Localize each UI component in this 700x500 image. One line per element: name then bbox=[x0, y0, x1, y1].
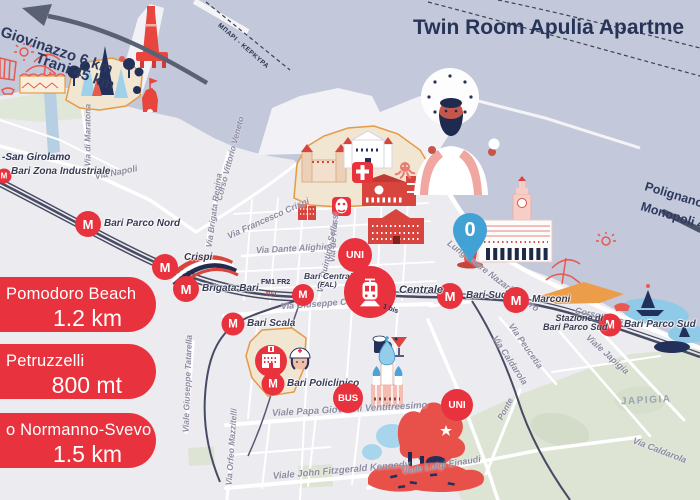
train-station-label: Centrale bbox=[399, 285, 443, 297]
distance-card-petruzzelli[interactable]: Petruzzelli 800 mt bbox=[0, 344, 156, 399]
metro-marker-marconi[interactable]: M bbox=[503, 287, 529, 313]
metro-label: Bari Parco Nord bbox=[104, 219, 180, 230]
metro-marker-bari-policlinico[interactable]: M bbox=[262, 373, 285, 396]
parco-sud-station-caption: Stazione di Bari Parco Sud bbox=[543, 314, 603, 333]
place-distance: 1.2 km bbox=[0, 305, 122, 332]
street-label: Via di Maratona bbox=[84, 104, 93, 167]
place-name: Petruzzelli bbox=[6, 352, 156, 371]
metro-label: Marconi bbox=[532, 295, 570, 306]
bari-tourist-map: Twin Room Apulia Apartme Giovinazzo 6 km… bbox=[0, 0, 700, 500]
metro-marker-brigata-bari[interactable]: M bbox=[173, 276, 199, 302]
rail-lines-label: FM1 FR2 bbox=[261, 279, 290, 286]
location-pin[interactable]: 0 bbox=[451, 212, 489, 264]
metro-label: Brigata Bari bbox=[202, 284, 259, 295]
metro-marker-bari-scala[interactable]: M bbox=[222, 313, 245, 336]
uni-badge[interactable]: UNI bbox=[441, 389, 473, 421]
metro-label: Bari Scala bbox=[247, 319, 295, 330]
bus-badge[interactable]: BUS bbox=[333, 383, 363, 413]
train-icon bbox=[355, 277, 385, 307]
map-title: Twin Room Apulia Apartme bbox=[413, 16, 684, 40]
area-san-girolamo: -San Girolamo bbox=[2, 153, 70, 164]
place-distance: 800 mt bbox=[0, 372, 122, 399]
place-name: Pomodoro Beach bbox=[6, 285, 156, 304]
metro-marker-bari-parco-nord[interactable]: M bbox=[75, 211, 101, 237]
distance-card-pomodoro-beach[interactable]: Pomodoro Beach 1.2 km bbox=[0, 277, 156, 332]
beach-cabins-illustration bbox=[20, 74, 65, 93]
metro-label: Bari Parco Sud bbox=[624, 320, 696, 331]
metro-label: Crispi bbox=[184, 253, 212, 264]
place-name: o Normanno-Svevo bbox=[6, 421, 156, 440]
metro-label: Bari Zona Industriale bbox=[11, 167, 110, 178]
pin-label: 0 bbox=[451, 219, 489, 242]
distance-card-normanno-svevo[interactable]: o Normanno-Svevo 1.5 km bbox=[0, 413, 156, 468]
place-distance: 1.5 km bbox=[0, 441, 122, 468]
metro-label: Bari Centrale (FAL) bbox=[304, 272, 350, 289]
rfi-label: RFI bbox=[266, 292, 276, 299]
church-cross-icon bbox=[352, 162, 373, 183]
metro-marker-crispi[interactable]: M bbox=[152, 254, 178, 280]
